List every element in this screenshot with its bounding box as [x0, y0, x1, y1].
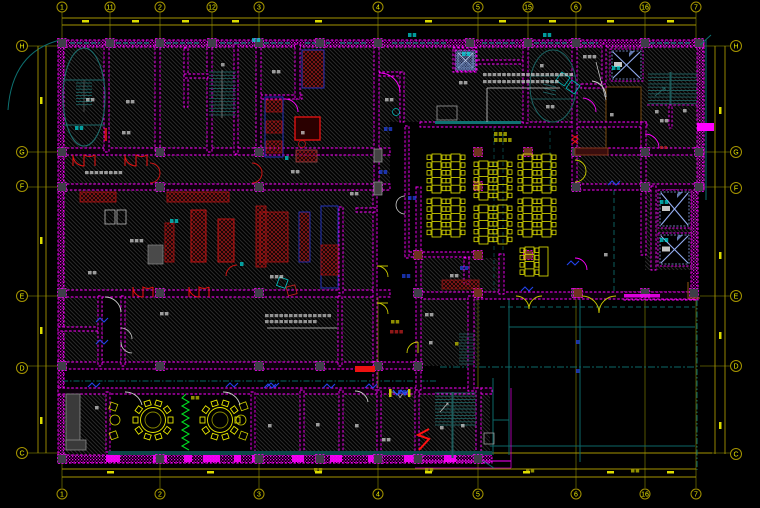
svg-text:G: G [19, 150, 24, 157]
svg-text:D: D [733, 364, 738, 371]
svg-text:5: 5 [476, 5, 480, 12]
svg-text:F: F [734, 186, 738, 193]
svg-text:3: 3 [257, 5, 261, 12]
svg-text:G: G [733, 150, 738, 157]
svg-text:6: 6 [574, 5, 578, 12]
svg-text:C: C [733, 452, 738, 459]
svg-text:C: C [19, 451, 24, 458]
svg-text:12: 12 [208, 5, 216, 12]
svg-text:11: 11 [106, 5, 113, 12]
svg-text:7: 7 [694, 492, 698, 499]
svg-text:E: E [20, 294, 25, 301]
svg-text:1: 1 [60, 5, 64, 12]
svg-text:H: H [19, 44, 24, 51]
svg-text:16: 16 [641, 5, 649, 12]
svg-text:2: 2 [158, 492, 162, 499]
svg-text:15: 15 [524, 5, 532, 12]
svg-text:7: 7 [694, 5, 698, 12]
svg-text:2: 2 [158, 5, 162, 12]
svg-text:F: F [20, 184, 24, 191]
svg-text:4: 4 [376, 5, 380, 12]
svg-text:1: 1 [60, 492, 64, 499]
svg-text:5: 5 [476, 492, 480, 499]
svg-text:E: E [734, 294, 739, 301]
svg-text:D: D [19, 366, 24, 373]
svg-text:4: 4 [376, 492, 380, 499]
svg-text:6: 6 [574, 492, 578, 499]
svg-text:16: 16 [641, 492, 649, 499]
svg-text:H: H [733, 44, 738, 51]
svg-text:3: 3 [257, 492, 261, 499]
